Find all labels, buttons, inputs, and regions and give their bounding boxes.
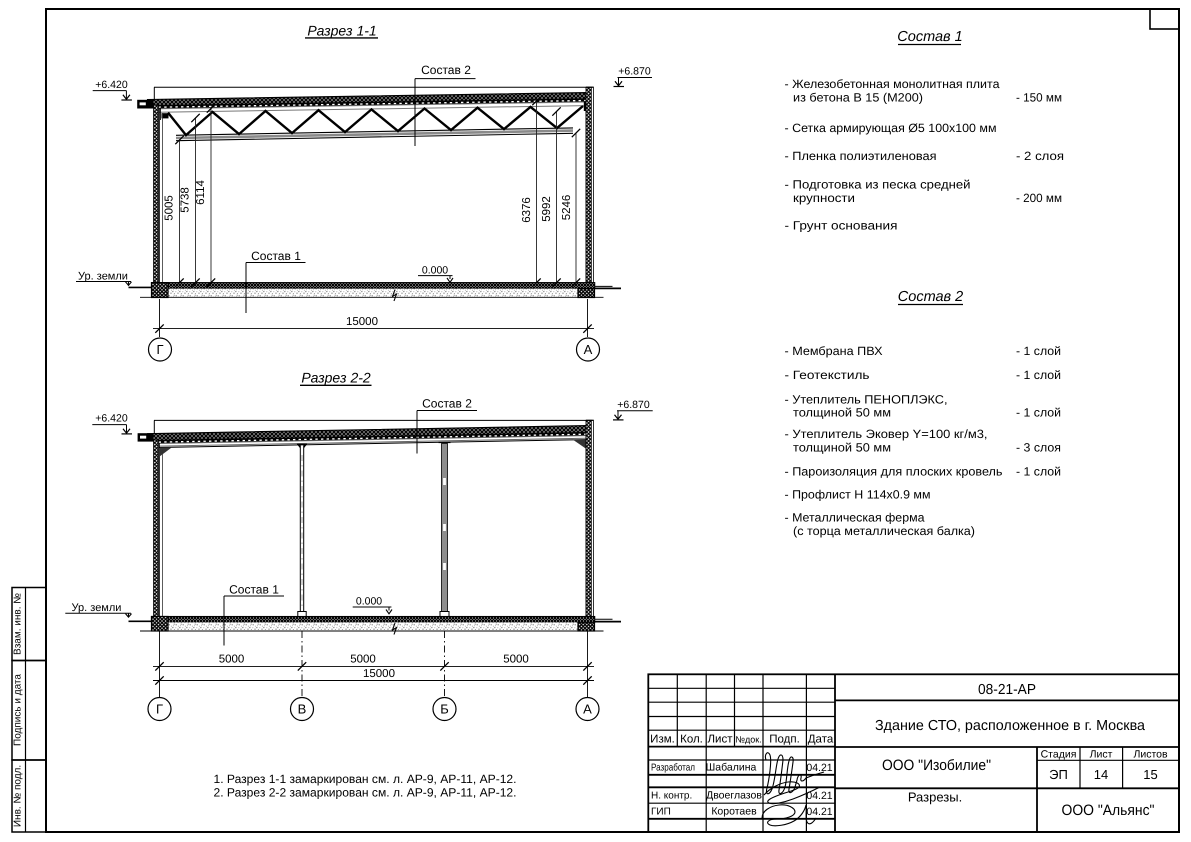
svg-text:Разрез 1-1: Разрез 1-1 — [307, 23, 376, 39]
svg-text:Дата: Дата — [808, 734, 834, 746]
svg-text:- 1 слой: - 1 слой — [1016, 368, 1061, 382]
svg-text:- Геотекстиль: - Геотекстиль — [785, 368, 870, 382]
svg-text:- 3 слоя: - 3 слоя — [1016, 441, 1061, 455]
svg-text:- 1 слой: - 1 слой — [1016, 465, 1061, 479]
svg-text:0.000: 0.000 — [422, 265, 448, 277]
svg-text:5246: 5246 — [561, 195, 573, 221]
svg-text:ГИП: ГИП — [651, 807, 671, 818]
svg-text:В: В — [298, 702, 307, 717]
svg-text:Инв. № подл.: Инв. № подл. — [13, 765, 24, 827]
svg-text:Взам. инв. №: Взам. инв. № — [13, 593, 24, 655]
svg-text:5000: 5000 — [503, 654, 529, 666]
svg-text:Состав 2: Состав 2 — [422, 397, 472, 411]
svg-text:Состав 1: Состав 1 — [897, 29, 962, 45]
svg-text:- Пароизоляция для плоских кро: - Пароизоляция для плоских кровель — [785, 465, 1003, 479]
svg-text:5000: 5000 — [350, 654, 376, 666]
svg-text:Б: Б — [440, 702, 449, 717]
svg-text:Ур. земли: Ур. земли — [78, 271, 128, 283]
svg-text:толщиной 50 мм: толщиной 50 мм — [793, 406, 891, 420]
svg-text:Лист: Лист — [708, 734, 734, 746]
svg-text:6376: 6376 — [521, 197, 533, 223]
svg-text:- Утеплитель ПЕНОПЛЭКС,: - Утеплитель ПЕНОПЛЭКС, — [785, 393, 948, 407]
svg-text:Состав 1: Состав 1 — [251, 249, 301, 263]
svg-text:толщиной 50 мм: толщиной 50 мм — [793, 441, 891, 455]
svg-text:- 2 слоя: - 2 слоя — [1016, 149, 1064, 163]
svg-text:№док.: №док. — [735, 735, 761, 745]
svg-text:15: 15 — [1143, 767, 1157, 782]
svg-text:Состав 2: Состав 2 — [898, 289, 963, 305]
svg-text:Шабалина: Шабалина — [706, 762, 757, 774]
svg-text:- Железобетонная монолитная п: - Железобетонная монолитная плита — [785, 77, 1000, 91]
svg-text:- 1 слой: - 1 слой — [1016, 406, 1061, 420]
svg-text:Изм.: Изм. — [650, 734, 675, 746]
svg-text:Н. контр.: Н. контр. — [651, 791, 692, 802]
svg-text:Лист: Лист — [1090, 749, 1113, 761]
svg-text:Здание СТО, расположенное в г.: Здание СТО, расположенное в г. Москва — [875, 718, 1146, 734]
svg-text:04.21: 04.21 — [806, 762, 832, 774]
svg-text:- Утеплитель Эковер Y=100 кг/м: - Утеплитель Эковер Y=100 кг/м3, — [785, 427, 988, 441]
svg-text:1. Разрез 1-1 замаркирован см.: 1. Разрез 1-1 замаркирован см. л. АР-9, … — [214, 772, 517, 786]
svg-text:15000: 15000 — [363, 668, 395, 680]
svg-text:ЭП: ЭП — [1049, 767, 1068, 782]
svg-text:+6.870: +6.870 — [617, 399, 650, 411]
svg-text:Кол.: Кол. — [680, 734, 703, 746]
svg-text:Состав 2: Состав 2 — [421, 63, 471, 77]
svg-text:5738: 5738 — [180, 187, 192, 213]
svg-text:+6.420: +6.420 — [95, 413, 128, 425]
svg-text:15000: 15000 — [346, 316, 378, 328]
svg-text:5000: 5000 — [219, 654, 245, 666]
svg-text:Г: Г — [156, 702, 163, 717]
svg-text:08-21-АР: 08-21-АР — [978, 682, 1036, 698]
svg-text:Коротаев: Коротаев — [711, 806, 757, 818]
svg-text:- Металлическая ферма: - Металлическая ферма — [785, 511, 925, 525]
svg-text:А: А — [583, 702, 592, 717]
svg-text:- 200 мм: - 200 мм — [1016, 191, 1062, 205]
svg-text:- Пленка полиэтиленовая: - Пленка полиэтиленовая — [785, 149, 937, 163]
svg-text:- 1 слой: - 1 слой — [1016, 344, 1061, 358]
svg-text:- Грунт основания: - Грунт основания — [785, 218, 898, 232]
svg-text:2. Разрез 2-2 замаркирован см.: 2. Разрез 2-2 замаркирован см. л. АР-9, … — [214, 786, 517, 800]
svg-text:+6.420: +6.420 — [95, 79, 128, 91]
svg-text:5992: 5992 — [541, 196, 553, 222]
svg-text:- Профлист Н 114х0.9 мм: - Профлист Н 114х0.9 мм — [785, 488, 931, 502]
svg-text:6114: 6114 — [195, 180, 207, 205]
svg-text:Ур. земли: Ур. земли — [72, 602, 122, 614]
svg-text:Подп.: Подп. — [769, 734, 800, 746]
svg-text:- 150 мм: - 150 мм — [1016, 90, 1062, 104]
svg-text:5005: 5005 — [164, 195, 176, 221]
svg-text:(с торца металлическая балка): (с торца металлическая балка) — [793, 524, 975, 538]
svg-text:крупности: крупности — [793, 191, 855, 205]
svg-text:Листов: Листов — [1133, 749, 1168, 761]
svg-text:ООО "Изобилие": ООО "Изобилие" — [882, 757, 991, 774]
svg-text:+6.870: +6.870 — [618, 66, 651, 78]
svg-text:04.21: 04.21 — [806, 806, 832, 818]
svg-text:Подпись и дата: Подпись и дата — [13, 674, 24, 746]
svg-text:- Мембрана ПВХ: - Мембрана ПВХ — [785, 344, 883, 358]
svg-text:Разрезы.: Разрезы. — [908, 790, 962, 805]
svg-text:0.000: 0.000 — [356, 596, 382, 608]
svg-text:14: 14 — [1094, 767, 1108, 782]
svg-text:Двоеглазов: Двоеглазов — [706, 790, 762, 802]
svg-text:Разработал: Разработал — [651, 763, 695, 774]
svg-text:ООО "Альянс": ООО "Альянс" — [1062, 802, 1155, 819]
svg-text:Г: Г — [156, 342, 163, 357]
svg-text:- Сетка армирующая Ø5 100х100: - Сетка армирующая Ø5 100х100 мм — [785, 121, 997, 135]
svg-text:Стадия: Стадия — [1041, 749, 1077, 761]
svg-text:Разрез 2-2: Разрез 2-2 — [301, 370, 371, 386]
svg-text:- Подготовка из песка средней: - Подготовка из песка средней — [785, 177, 971, 191]
svg-text:Состав 1: Состав 1 — [229, 583, 279, 597]
svg-text:А: А — [584, 342, 593, 357]
svg-text:из бетона В 15 (М200): из бетона В 15 (М200) — [793, 90, 923, 104]
